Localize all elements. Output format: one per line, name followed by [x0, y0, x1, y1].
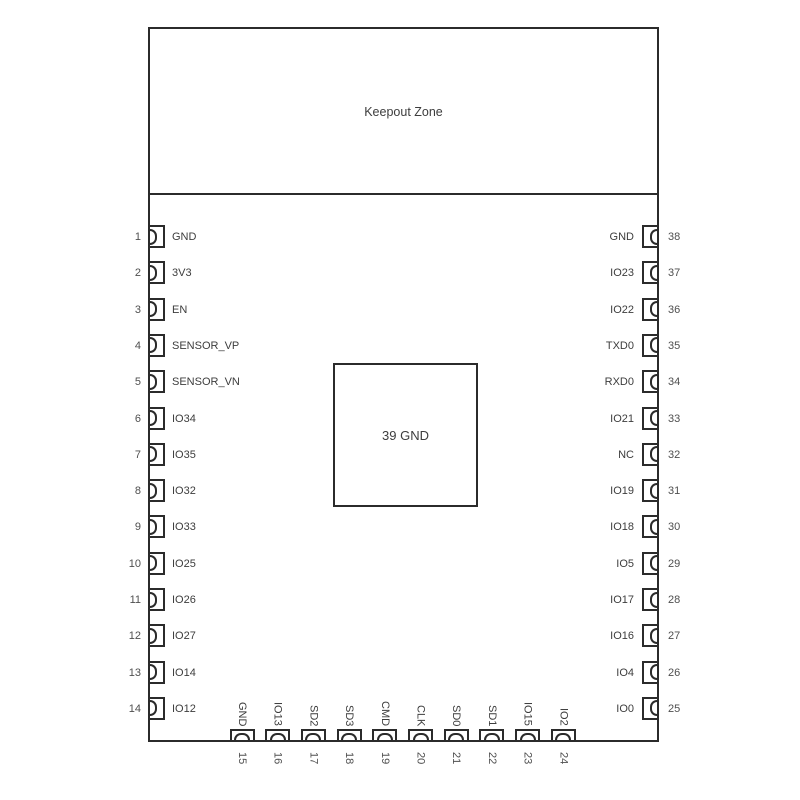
pin-number-35: 35	[668, 339, 680, 353]
pin-label-9: IO33	[172, 520, 196, 534]
pin-half-hole	[150, 374, 157, 390]
pin-number-wrap-19: 19	[376, 752, 394, 792]
pin-pad-25	[642, 697, 659, 720]
pin-label-wrap-16: IO13	[269, 686, 287, 726]
center-ground-pad: 39 GND	[333, 363, 478, 507]
pin-number-11: 11	[111, 593, 141, 607]
pin-label-29: IO5	[534, 557, 634, 571]
pin-number-9: 9	[111, 520, 141, 534]
pin-number-wrap-21: 21	[447, 752, 465, 792]
pin-label-1: GND	[172, 230, 196, 244]
pin-label-4: SENSOR_VP	[172, 339, 239, 353]
pin-label-30: IO18	[534, 520, 634, 534]
pin-half-hole	[150, 555, 157, 571]
pin-pad-32	[642, 443, 659, 466]
pin-pad-20	[408, 729, 433, 742]
pin-number-18: 18	[343, 752, 355, 764]
keepout-divider	[148, 193, 659, 195]
pin-half-hole	[270, 733, 286, 740]
pin-label-5: SENSOR_VN	[172, 375, 240, 389]
pin-label-24: IO2	[557, 708, 569, 726]
pin-label-6: IO34	[172, 412, 196, 426]
pin-number-4: 4	[111, 339, 141, 353]
pin-number-wrap-16: 16	[269, 752, 287, 792]
pin-label-27: IO16	[534, 629, 634, 643]
pin-half-hole	[650, 410, 657, 426]
pin-pad-5	[148, 370, 165, 393]
pin-number-16: 16	[272, 752, 284, 764]
pin-pad-38	[642, 225, 659, 248]
pin-number-3: 3	[111, 303, 141, 317]
pin-half-hole	[150, 483, 157, 499]
pin-pad-14	[148, 697, 165, 720]
pin-number-24: 24	[557, 752, 569, 764]
pin-label-18: SD3	[343, 705, 355, 726]
pin-pad-35	[642, 334, 659, 357]
pin-pad-33	[642, 407, 659, 430]
pin-pad-2	[148, 261, 165, 284]
pin-number-wrap-24: 24	[554, 752, 572, 792]
pin-pad-30	[642, 515, 659, 538]
pin-pad-9	[148, 515, 165, 538]
pin-half-hole	[650, 337, 657, 353]
pin-label-21: SD0	[450, 705, 462, 726]
pin-number-28: 28	[668, 593, 680, 607]
pin-label-wrap-24: IO2	[554, 686, 572, 726]
pin-number-34: 34	[668, 375, 680, 389]
pin-half-hole	[650, 265, 657, 281]
pin-number-wrap-15: 15	[233, 752, 251, 792]
pin-pad-27	[642, 624, 659, 647]
pin-half-hole	[650, 664, 657, 680]
pin-pad-29	[642, 552, 659, 575]
pin-half-hole	[150, 301, 157, 317]
pin-number-wrap-17: 17	[304, 752, 322, 792]
pin-number-12: 12	[111, 629, 141, 643]
pin-half-hole	[150, 265, 157, 281]
pin-number-36: 36	[668, 303, 680, 317]
pin-label-3: EN	[172, 303, 187, 317]
pin-half-hole	[150, 700, 157, 716]
pin-half-hole	[650, 483, 657, 499]
pin-number-8: 8	[111, 484, 141, 498]
pin-label-16: IO13	[272, 702, 284, 726]
pin-label-14: IO12	[172, 702, 196, 716]
pin-pad-23	[515, 729, 540, 742]
pin-pad-18	[337, 729, 362, 742]
pin-half-hole	[448, 733, 464, 740]
pin-number-5: 5	[111, 375, 141, 389]
pin-label-15: GND	[236, 702, 248, 726]
pin-label-28: IO17	[534, 593, 634, 607]
pin-number-wrap-18: 18	[340, 752, 358, 792]
pin-pad-1	[148, 225, 165, 248]
pin-number-14: 14	[111, 702, 141, 716]
pin-number-30: 30	[668, 520, 680, 534]
pin-pad-6	[148, 407, 165, 430]
pin-label-10: IO25	[172, 557, 196, 571]
pin-pad-8	[148, 479, 165, 502]
pin-label-8: IO32	[172, 484, 196, 498]
pin-half-hole	[150, 664, 157, 680]
pin-number-31: 31	[668, 484, 680, 498]
pin-half-hole	[150, 519, 157, 535]
pin-pad-13	[148, 661, 165, 684]
pin-number-21: 21	[450, 752, 462, 764]
pin-number-17: 17	[307, 752, 319, 764]
pin-pad-24	[551, 729, 576, 742]
pin-label-wrap-15: GND	[233, 686, 251, 726]
pin-pad-10	[148, 552, 165, 575]
pin-label-7: IO35	[172, 448, 196, 462]
pin-half-hole	[234, 733, 250, 740]
pin-label-wrap-21: SD0	[447, 686, 465, 726]
pin-number-wrap-22: 22	[483, 752, 501, 792]
pin-number-38: 38	[668, 230, 680, 244]
pin-half-hole	[650, 700, 657, 716]
pin-pad-34	[642, 370, 659, 393]
pin-label-34: RXD0	[534, 375, 634, 389]
pin-pad-7	[148, 443, 165, 466]
pin-half-hole	[650, 592, 657, 608]
pin-half-hole	[305, 733, 321, 740]
pin-number-10: 10	[111, 557, 141, 571]
pin-half-hole	[150, 337, 157, 353]
pin-pad-37	[642, 261, 659, 284]
pin-pad-28	[642, 588, 659, 611]
pin-number-33: 33	[668, 412, 680, 426]
pin-number-15: 15	[236, 752, 248, 764]
pin-label-32: NC	[534, 448, 634, 462]
pin-half-hole	[341, 733, 357, 740]
pin-half-hole	[650, 555, 657, 571]
pin-half-hole	[150, 446, 157, 462]
pin-half-hole	[413, 733, 429, 740]
pin-label-2: 3V3	[172, 266, 192, 280]
pin-number-2: 2	[111, 266, 141, 280]
pin-label-35: TXD0	[534, 339, 634, 353]
pin-half-hole	[520, 733, 536, 740]
pin-label-38: GND	[534, 230, 634, 244]
pin-label-33: IO21	[534, 412, 634, 426]
pin-pad-15	[230, 729, 255, 742]
pin-label-17: SD2	[307, 705, 319, 726]
pin-half-hole	[650, 229, 657, 245]
pin-label-12: IO27	[172, 629, 196, 643]
pin-label-31: IO19	[534, 484, 634, 498]
pin-label-23: IO15	[522, 702, 534, 726]
pin-number-23: 23	[522, 752, 534, 764]
pin-half-hole	[150, 229, 157, 245]
pin-pad-36	[642, 298, 659, 321]
pin-half-hole	[150, 410, 157, 426]
pin-label-20: CLK	[415, 705, 427, 726]
pin-pad-4	[148, 334, 165, 357]
pin-half-hole	[650, 374, 657, 390]
pin-label-26: IO4	[534, 666, 634, 680]
pin-number-1: 1	[111, 230, 141, 244]
pin-half-hole	[650, 446, 657, 462]
pin-number-27: 27	[668, 629, 680, 643]
pinout-diagram: Keepout Zone 39 GND 1GND23V33EN4SENSOR_V…	[0, 0, 800, 800]
keepout-zone-label: Keepout Zone	[148, 105, 659, 119]
pin-label-wrap-23: IO15	[519, 686, 537, 726]
pin-number-32: 32	[668, 448, 680, 462]
pin-label-wrap-17: SD2	[304, 686, 322, 726]
pin-number-25: 25	[668, 702, 680, 716]
pin-label-22: SD1	[486, 705, 498, 726]
pin-pad-26	[642, 661, 659, 684]
pin-half-hole	[555, 733, 571, 740]
pin-number-22: 22	[486, 752, 498, 764]
pin-number-6: 6	[111, 412, 141, 426]
pin-pad-19	[372, 729, 397, 742]
pin-number-13: 13	[111, 666, 141, 680]
pin-label-19: CMD	[379, 701, 391, 726]
pin-label-25: IO0	[534, 702, 634, 716]
center-pad-label: 39 GND	[382, 428, 429, 443]
pin-half-hole	[150, 592, 157, 608]
pin-half-hole	[150, 628, 157, 644]
pin-label-37: IO23	[534, 266, 634, 280]
pin-number-7: 7	[111, 448, 141, 462]
pin-half-hole	[650, 628, 657, 644]
pin-half-hole	[484, 733, 500, 740]
pin-label-36: IO22	[534, 303, 634, 317]
pin-label-wrap-19: CMD	[376, 686, 394, 726]
pin-label-wrap-18: SD3	[340, 686, 358, 726]
pin-label-11: IO26	[172, 593, 196, 607]
pin-half-hole	[377, 733, 393, 740]
pin-pad-11	[148, 588, 165, 611]
pin-label-13: IO14	[172, 666, 196, 680]
pin-pad-22	[479, 729, 504, 742]
pin-pad-31	[642, 479, 659, 502]
pin-pad-21	[444, 729, 469, 742]
pin-number-wrap-23: 23	[519, 752, 537, 792]
pin-label-wrap-20: CLK	[412, 686, 430, 726]
pin-half-hole	[650, 301, 657, 317]
pin-number-20: 20	[415, 752, 427, 764]
pin-number-29: 29	[668, 557, 680, 571]
pin-number-26: 26	[668, 666, 680, 680]
pin-number-wrap-20: 20	[412, 752, 430, 792]
pin-pad-17	[301, 729, 326, 742]
pin-pad-16	[265, 729, 290, 742]
pin-half-hole	[650, 519, 657, 535]
pin-pad-12	[148, 624, 165, 647]
pin-pad-3	[148, 298, 165, 321]
pin-number-37: 37	[668, 266, 680, 280]
pin-number-19: 19	[379, 752, 391, 764]
pin-label-wrap-22: SD1	[483, 686, 501, 726]
